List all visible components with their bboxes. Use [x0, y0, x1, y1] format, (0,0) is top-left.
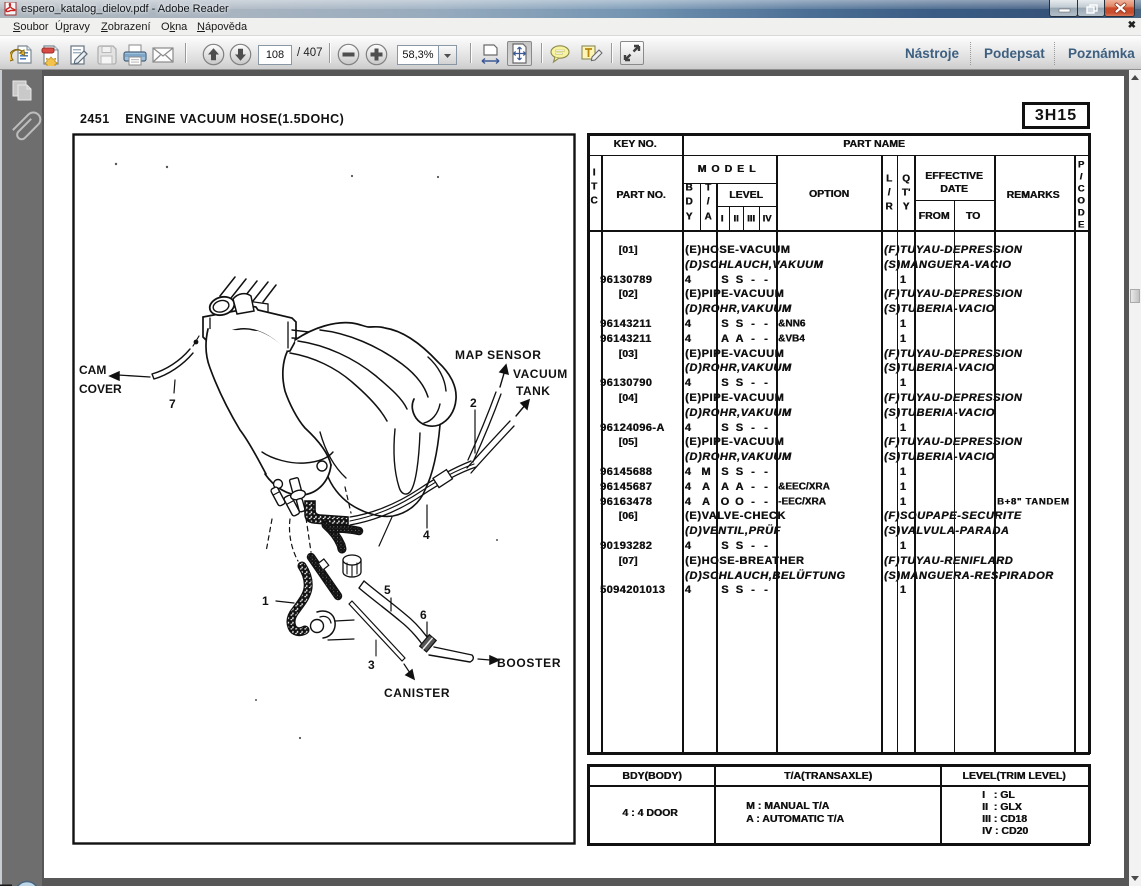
svg-text:BOOSTER: BOOSTER [497, 656, 561, 670]
svg-text:VACUUM: VACUUM [513, 367, 568, 381]
svg-text:3: 3 [368, 658, 375, 672]
svg-text:1: 1 [262, 594, 269, 608]
svg-text:CAM: CAM [79, 363, 106, 377]
svg-text:7: 7 [169, 397, 176, 411]
svg-text:2: 2 [470, 396, 477, 410]
svg-text:4: 4 [423, 528, 430, 542]
svg-text:TANK: TANK [516, 384, 550, 398]
svg-text:MAP SENSOR: MAP SENSOR [455, 348, 541, 362]
svg-text:COVER: COVER [79, 382, 122, 396]
svg-text:CANISTER: CANISTER [384, 686, 450, 700]
svg-text:5: 5 [384, 583, 391, 597]
svg-text:6: 6 [420, 608, 427, 622]
